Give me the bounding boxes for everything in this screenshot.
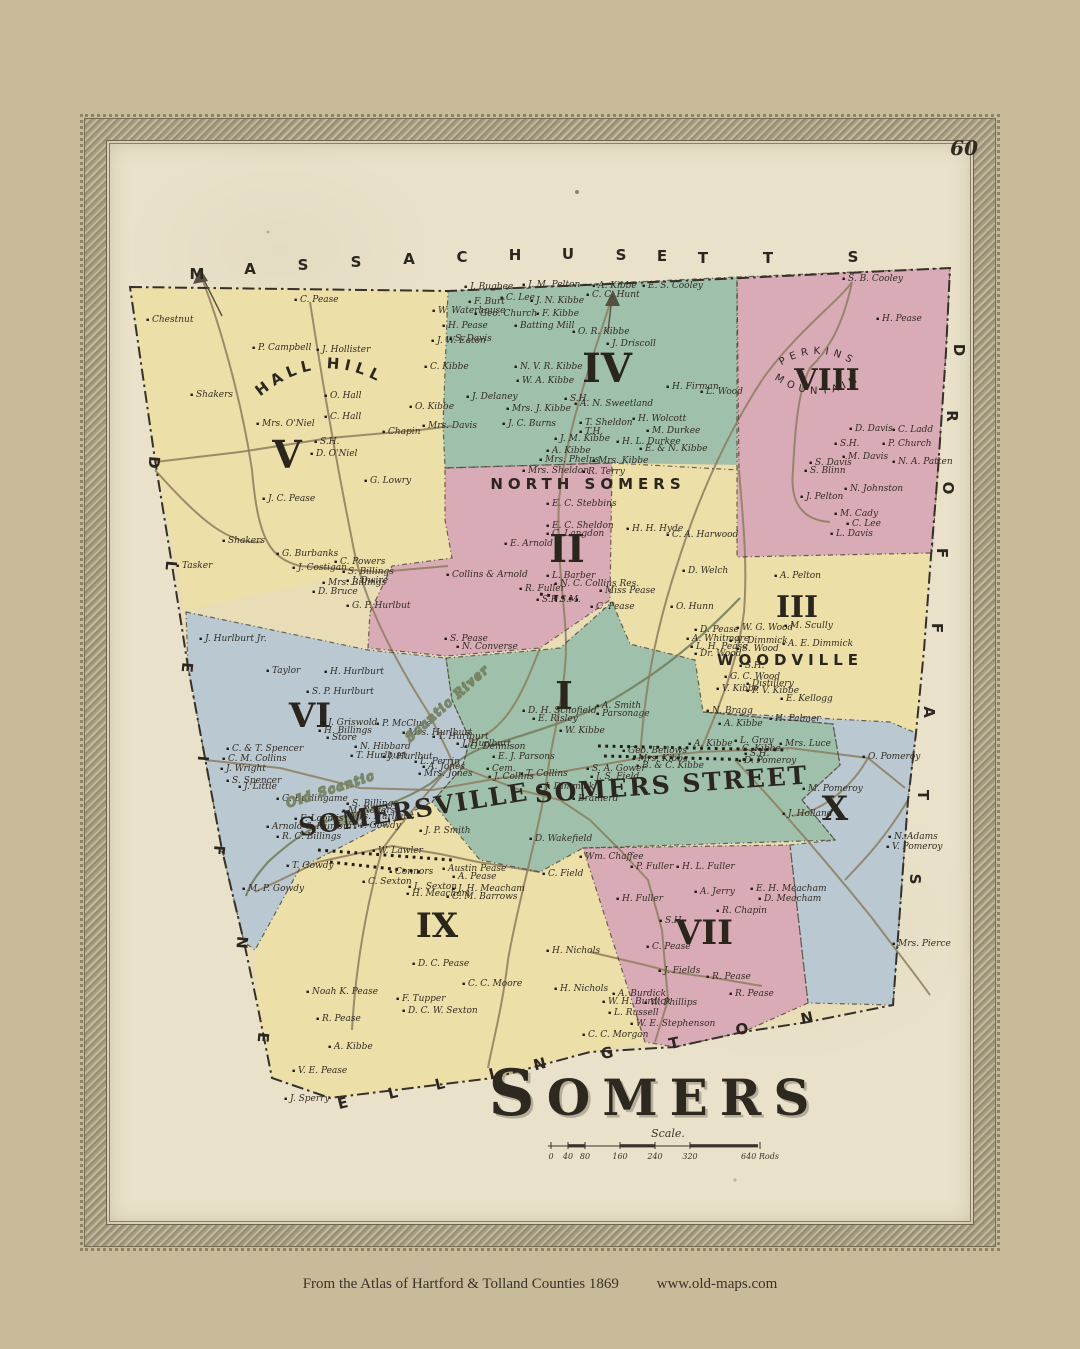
- resident-label: H. Fuller: [621, 894, 664, 904]
- house-dot: [453, 876, 455, 878]
- house-dot: [883, 443, 885, 445]
- resident-label: C. Powers: [340, 557, 386, 567]
- house-dot: [805, 470, 807, 472]
- house-dot: [737, 648, 739, 650]
- border-letter-top: M: [190, 265, 205, 283]
- house-dot: [365, 480, 367, 482]
- house-dot: [223, 758, 225, 760]
- resident-label: A. N. Sweetland: [579, 399, 653, 409]
- resident-label: H. Hurlburt: [329, 667, 384, 677]
- house-dot: [443, 868, 445, 870]
- resident-label: E. C. Stebbins: [551, 499, 617, 509]
- resident-label: T. Gowdy: [292, 861, 334, 871]
- place-label: WOODVILLE: [717, 651, 863, 669]
- house-dot: [893, 461, 895, 463]
- house-dot: [695, 629, 697, 631]
- house-dot: [801, 496, 803, 498]
- resident-label: D. Bruce: [317, 587, 358, 597]
- resident-label: D. C. W. Sexton: [407, 1006, 478, 1016]
- resident-label: O. Pomeroy: [868, 752, 921, 762]
- house-dot: [319, 730, 321, 732]
- resident-label: J. N. Kibbe: [534, 296, 584, 306]
- house-dot: [489, 776, 491, 778]
- resident-label: C. Lee: [852, 519, 881, 529]
- house-dot: [633, 758, 635, 760]
- house-dot: [147, 319, 149, 321]
- house-dot: [407, 893, 409, 895]
- house-dot: [307, 691, 309, 693]
- resident-label: A. E. Dimmick: [787, 639, 853, 649]
- resident-label: Mrs. Kibbe: [597, 456, 648, 466]
- house-dot: [783, 813, 785, 815]
- house-dot: [770, 718, 772, 720]
- house-dot: [730, 640, 732, 642]
- scale-tick-label: 160: [612, 1152, 627, 1161]
- house-dot: [591, 606, 593, 608]
- resident-label: C. Sexton: [368, 877, 412, 887]
- resident-label: Shakers: [228, 536, 265, 546]
- house-dot: [469, 301, 471, 303]
- resident-label: W. Phillips: [650, 998, 698, 1008]
- house-dot: [351, 755, 353, 757]
- house-dot: [463, 983, 465, 985]
- house-dot: [593, 285, 595, 287]
- resident-label: Collins & Arnold: [452, 570, 528, 580]
- house-dot: [311, 453, 313, 455]
- resident-label: J. Driscoll: [610, 339, 656, 349]
- house-dot: [643, 285, 645, 287]
- house-dot: [783, 643, 785, 645]
- resident-label: O. R. Kibbe: [578, 327, 630, 337]
- resident-label: W. E. Stephenson: [636, 1019, 716, 1029]
- scale-bar: Scale. 04080160240320640 Rods: [548, 1127, 779, 1161]
- house-dot: [780, 743, 782, 745]
- house-dot: [200, 638, 202, 640]
- resident-label: Tasker: [182, 561, 213, 571]
- resident-label: G. Lowry: [370, 476, 412, 486]
- house-dot: [397, 998, 399, 1000]
- house-dot: [383, 431, 385, 433]
- border-letter-top: S: [616, 246, 627, 264]
- house-dot: [517, 380, 519, 382]
- house-dot: [327, 737, 329, 739]
- house-dot: [597, 705, 599, 707]
- resident-label: H. L. Fuller: [681, 862, 735, 872]
- resident-label: E. Kellogg: [785, 694, 833, 704]
- resident-label: Connors: [395, 867, 434, 877]
- resident-label: J. C. Pease: [266, 494, 315, 504]
- house-dot: [287, 865, 289, 867]
- resident-label: E. J. Parsons: [497, 752, 555, 762]
- scale-tick-label: 80: [580, 1152, 590, 1161]
- resident-label: J. Hurlburt Jr.: [203, 634, 267, 644]
- house-dot: [523, 284, 525, 286]
- house-dot: [443, 325, 445, 327]
- resident-label: C. Field: [548, 869, 584, 879]
- house-dot: [419, 773, 421, 775]
- house-dot: [893, 429, 895, 431]
- house-dot: [775, 575, 777, 577]
- resident-label: J. Bugbee: [468, 282, 513, 292]
- house-dot: [409, 886, 411, 888]
- house-dot: [781, 698, 783, 700]
- house-dot: [347, 605, 349, 607]
- resident-label: V. Pomeroy: [892, 842, 943, 852]
- resident-label: Mrs. Phelps: [544, 455, 600, 465]
- house-dot: [447, 896, 449, 898]
- house-dot: [505, 543, 507, 545]
- house-dot: [317, 1018, 319, 1020]
- house-dot: [523, 470, 525, 472]
- border-letter-left: F: [210, 845, 229, 857]
- house-dot: [575, 403, 577, 405]
- resident-label: Noah K. Pease: [311, 987, 378, 997]
- resident-label: Mrs. J. Kibbe: [511, 404, 571, 414]
- bottom-caption: From the Atlas of Hartford & Tolland Cou…: [0, 1276, 1080, 1293]
- house-dot: [432, 340, 434, 342]
- house-dot: [457, 743, 459, 745]
- house-dot: [410, 406, 412, 408]
- resident-label: W. G. Wood: [742, 623, 793, 633]
- resident-label: Geo. Church: [480, 309, 537, 319]
- house-dot: [403, 1010, 405, 1012]
- resident-label: S. Blinn: [810, 466, 846, 476]
- border-letter-top: S: [848, 248, 859, 266]
- resident-label: S.M.: [560, 595, 581, 605]
- house-dot: [631, 1023, 633, 1025]
- house-dot: [547, 450, 549, 452]
- house-dot: [390, 871, 392, 873]
- house-dot: [329, 1046, 331, 1048]
- resident-label: C. A. Harwood: [672, 530, 739, 540]
- border-letter-top: S: [298, 256, 309, 274]
- house-dot: [227, 780, 229, 782]
- house-dot: [267, 670, 269, 672]
- resident-label: S.H.: [542, 595, 562, 605]
- house-dot: [547, 950, 549, 952]
- house-dot: [177, 565, 179, 567]
- resident-label: Store: [332, 733, 357, 743]
- house-dot: [739, 760, 741, 762]
- house-dot: [627, 528, 629, 530]
- house-dot: [425, 366, 427, 368]
- house-dot: [537, 313, 539, 315]
- house-dot: [695, 653, 697, 655]
- resident-label: A. Kibbe: [723, 719, 763, 729]
- house-dot: [487, 768, 489, 770]
- house-dot: [647, 946, 649, 948]
- resident-label: Miss Pease: [604, 586, 655, 596]
- house-dot: [845, 488, 847, 490]
- house-dot: [307, 991, 309, 993]
- resident-label: N. Adams: [893, 832, 938, 842]
- house-dot: [889, 836, 891, 838]
- house-dot: [373, 850, 375, 852]
- house-dot: [717, 910, 719, 912]
- resident-label: R. Pease: [321, 1014, 361, 1024]
- resident-label: F. Burt: [473, 297, 505, 307]
- resident-label: C. C. Moore: [468, 979, 522, 989]
- resident-label: C. Kibbe: [430, 362, 469, 372]
- house-dot: [295, 299, 297, 301]
- resident-label: F. Tupper: [401, 994, 446, 1004]
- border-letter-top: T: [698, 249, 709, 267]
- scale-tick-label: 240: [646, 1152, 662, 1161]
- house-dot: [689, 743, 691, 745]
- house-dot: [523, 710, 525, 712]
- resident-label: L. Wood: [705, 387, 743, 397]
- resident-label: M. Durkee: [651, 426, 700, 436]
- resident-label: W. Kibbe: [565, 726, 605, 736]
- resident-label: H. Palmer: [774, 714, 821, 724]
- resident-label: Chestnut: [152, 315, 194, 325]
- house-dot: [277, 798, 279, 800]
- house-dot: [239, 786, 241, 788]
- resident-label: O. Hunn: [676, 602, 714, 612]
- house-dot: [583, 471, 585, 473]
- house-dot: [893, 943, 895, 945]
- place-label: NORTH SOMERS: [490, 475, 685, 493]
- resident-label: J. Holland: [786, 809, 833, 819]
- house-dot: [580, 422, 582, 424]
- house-dot: [325, 395, 327, 397]
- resident-label: H. Wolcott: [637, 414, 687, 424]
- scale-tick-label: 0: [548, 1152, 553, 1161]
- resident-label: Mrs. Pierce: [897, 939, 951, 949]
- house-dot: [835, 513, 837, 515]
- border-letter-left: E: [254, 1032, 273, 1044]
- resident-label: D. Meacham: [763, 894, 821, 904]
- house-dot: [325, 671, 327, 673]
- house-dot: [617, 898, 619, 900]
- resident-label: M. P. Gowdy: [247, 884, 305, 894]
- house-dot: [293, 567, 295, 569]
- house-dot: [573, 331, 575, 333]
- border-letter-right: D: [950, 344, 968, 356]
- resident-label: C. M. Barrows: [452, 892, 518, 902]
- resident-label: S.H.: [840, 439, 860, 449]
- house-dot: [600, 590, 602, 592]
- house-dot: [695, 891, 697, 893]
- resident-label: C. & T. Spencer: [232, 744, 304, 754]
- house-dot: [465, 746, 467, 748]
- border-letter-top: S: [351, 253, 362, 271]
- house-dot: [863, 756, 865, 758]
- resident-label: Mrs. Davis: [427, 421, 477, 431]
- house-dot: [660, 920, 662, 922]
- caption-text: From the Atlas of Hartford & Tolland Cou…: [303, 1276, 619, 1292]
- house-dot: [609, 1012, 611, 1014]
- resident-label: D. C. Pease: [417, 959, 469, 969]
- house-dot: [617, 441, 619, 443]
- resident-label: E. S. Cooley: [647, 281, 704, 291]
- border-letter-top: T: [763, 249, 774, 267]
- border-letter-right: R: [943, 410, 961, 422]
- house-dot: [555, 438, 557, 440]
- resident-label: R. Fuller: [524, 584, 566, 594]
- resident-label: C. Langdon: [552, 529, 604, 539]
- resident-label: D. Wakefield: [534, 834, 592, 844]
- house-dot: [520, 588, 522, 590]
- house-dot: [640, 448, 642, 450]
- house-dot: [725, 676, 727, 678]
- resident-label: Chapin: [388, 427, 421, 437]
- house-dot: [257, 423, 259, 425]
- house-dot: [645, 1002, 647, 1004]
- resident-label: E. H. Meacham: [755, 884, 827, 894]
- house-dot: [530, 838, 532, 840]
- house-dot: [835, 443, 837, 445]
- resident-label: A. Kibbe: [693, 739, 733, 749]
- border-letter-left: E: [178, 662, 197, 674]
- resident-label: J. Wright: [224, 764, 266, 774]
- house-dot: [243, 888, 245, 890]
- border-letter-left: I: [194, 755, 212, 762]
- house-dot: [683, 570, 685, 572]
- house-dot: [335, 561, 337, 563]
- resident-label: J. Hollister: [320, 345, 371, 355]
- house-dot: [587, 768, 589, 770]
- district-numeral-IX: IX: [416, 906, 459, 946]
- house-dot: [555, 599, 557, 601]
- border-letter-top: E: [657, 247, 667, 265]
- house-dot: [659, 970, 661, 972]
- house-dot: [623, 750, 625, 752]
- resident-label: M. Pomeroy: [807, 784, 864, 794]
- house-dot: [253, 347, 255, 349]
- resident-label: E. Risley: [537, 714, 579, 724]
- house-dot: [475, 313, 477, 315]
- resident-label: S.H.: [665, 916, 685, 926]
- house-dot: [759, 898, 761, 900]
- house-dot: [735, 740, 737, 742]
- caption-site: www.old-maps.com: [657, 1276, 778, 1292]
- district-numeral-V: V: [271, 432, 303, 477]
- house-dot: [667, 534, 669, 536]
- house-dot: [593, 460, 595, 462]
- resident-label: M. Scully: [789, 621, 834, 631]
- house-dot: [285, 1098, 287, 1100]
- border-letter-right: F: [928, 623, 946, 633]
- house-dot: [701, 391, 703, 393]
- resident-label: M. Cady: [839, 509, 879, 519]
- house-dot: [277, 553, 279, 555]
- house-dot: [465, 286, 467, 288]
- house-dot: [843, 278, 845, 280]
- house-dot: [603, 1001, 605, 1003]
- resident-label: S.H.: [320, 437, 340, 447]
- scale-tick-label: 40: [562, 1152, 573, 1161]
- border-letter-top: H: [509, 246, 522, 264]
- border-letter-right: F: [933, 548, 951, 558]
- resident-label: A. Pelton: [779, 571, 821, 581]
- house-dot: [587, 294, 589, 296]
- house-dot: [831, 533, 833, 535]
- resident-label: J. P. Smith: [423, 826, 471, 836]
- house-dot: [687, 638, 689, 640]
- house-dot: [810, 462, 812, 464]
- resident-label: V. Kibbe: [722, 684, 759, 694]
- house-dot: [850, 428, 852, 430]
- resident-label: E. Arnold: [509, 539, 553, 549]
- house-dot: [467, 396, 469, 398]
- resident-label: C. Pease: [300, 295, 339, 305]
- house-dot: [887, 846, 889, 848]
- house-dot: [521, 773, 523, 775]
- resident-label: Mrs. Jones: [423, 769, 473, 779]
- house-dot: [555, 988, 557, 990]
- resident-label: R. Pease: [734, 989, 774, 999]
- resident-label: Taylor: [272, 666, 301, 676]
- scale-tick-label: 320: [682, 1152, 697, 1161]
- house-dot: [445, 638, 447, 640]
- house-dot: [515, 366, 517, 368]
- resident-label: Parsonage: [601, 709, 650, 719]
- house-dot: [877, 318, 879, 320]
- house-dot: [607, 343, 609, 345]
- resident-label: P. Church: [887, 439, 932, 449]
- border-letter-top: C: [456, 248, 467, 266]
- house-dot: [847, 523, 849, 525]
- house-dot: [313, 591, 315, 593]
- resident-label: N. Converse: [461, 642, 518, 652]
- resident-label: S. P. Hurlburt: [312, 687, 374, 697]
- resident-label: L. Russell: [613, 1008, 659, 1018]
- map-canvas: MASSACHUSETTS DLEIFNE DROFFATS ELLINGTON…: [0, 0, 1080, 1349]
- resident-label: G. Burbanks: [282, 549, 339, 559]
- resident-label: J. Pelton: [804, 492, 844, 502]
- resident-label: A. Kibbe: [333, 1042, 373, 1052]
- resident-label: R. Pease: [711, 972, 751, 982]
- house-dot: [691, 646, 693, 648]
- resident-label: H. Pease: [881, 314, 922, 324]
- house-dot: [667, 386, 669, 388]
- resident-label: N. A. Patten: [897, 457, 953, 467]
- house-dot: [717, 688, 719, 690]
- resident-label: H. Pease: [447, 321, 488, 331]
- house-dot: [633, 418, 635, 420]
- map-title: SOMERS: [440, 1056, 870, 1131]
- house-dot: [707, 976, 709, 978]
- border-letter-right: S: [906, 874, 924, 885]
- house-dot: [433, 310, 435, 312]
- border-letter-bottom: E: [336, 1093, 350, 1113]
- resident-label: V. E. Pease: [298, 1066, 347, 1076]
- house-dot: [447, 574, 449, 576]
- house-dot: [323, 582, 325, 584]
- resident-label: Batting Mill: [519, 321, 574, 331]
- resident-label: Mrs. O'Niel: [261, 419, 315, 429]
- house-dot: [730, 993, 732, 995]
- house-dot: [677, 866, 679, 868]
- house-dot: [277, 836, 279, 838]
- resident-label: G. Dennison: [470, 742, 526, 752]
- district-numeral-III: III: [776, 590, 818, 625]
- house-dot: [293, 1070, 295, 1072]
- house-dot: [580, 856, 582, 858]
- border-letter-top: U: [562, 245, 574, 263]
- resident-label: F. Kibbe: [541, 309, 579, 319]
- house-dot: [493, 756, 495, 758]
- house-dot: [383, 756, 385, 758]
- house-dot: [613, 993, 615, 995]
- house-dot: [515, 325, 517, 327]
- atlas-page: 60: [0, 0, 1080, 1349]
- house-dot: [707, 710, 709, 712]
- resident-label: C. Pease: [596, 602, 635, 612]
- house-dot: [583, 1034, 585, 1036]
- resident-label: H. Nichols: [559, 984, 608, 994]
